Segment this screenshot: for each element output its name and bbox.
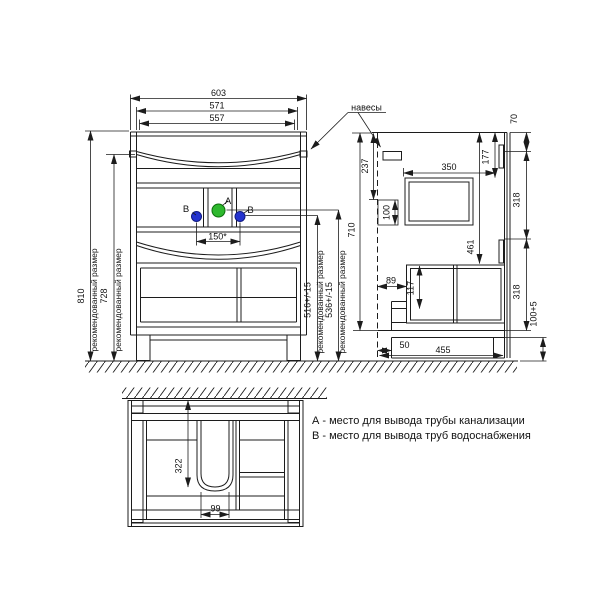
dim-810-note: рекомендованный размер [89,248,99,352]
point-a-label: А [225,196,232,207]
plan-view: 322 99 [122,388,327,527]
dim-536-note: рекомендованный размер [337,250,347,354]
front-view: В А В [130,132,339,361]
dim-810: 810 [76,288,86,303]
technical-drawing-page: В А В 603 571 557 810 рекомендованный ра… [0,0,600,600]
dim-603: 603 [211,88,226,98]
dim-728: 728 [99,288,109,303]
dim-461: 461 [466,239,476,254]
dim-350: 350 [441,162,456,172]
front-view-dimensions: 603 571 557 810 рекомендованный размер 7… [76,88,379,361]
dim-455: 455 [435,345,450,355]
ground [85,361,518,373]
dim-117: 117 [406,281,416,295]
back-rail-top [499,145,504,168]
point-b-label-left: В [183,204,189,215]
dim-150: 150* [208,232,227,242]
dim-50: 50 [399,340,409,350]
dim-536: 536+/-15 [324,282,334,318]
dim-100-5: 100+5 [529,301,539,326]
dim-516: 516+/-15 [303,282,313,318]
legend-line-b: В - место для вывода труб водоснабжения [312,430,531,442]
dim-237: 237 [360,158,370,173]
dim-571: 571 [209,101,224,111]
wall-hanger-bracket [383,152,402,161]
dim-70: 70 [509,114,519,124]
dim-89: 89 [386,276,396,286]
dim-177: 177 [481,149,491,164]
hangers-label: навесы [351,103,382,113]
water-outlet-point-right [235,212,245,222]
dim-710: 710 [347,222,357,237]
legend-line-a: А - место для вывода трубы канализации [312,415,525,427]
legend: А - место для вывода трубы канализации В… [312,415,531,442]
dim-322: 322 [174,458,184,473]
dim-728-note: рекомендованный размер [113,248,123,352]
point-b-label-right: В [247,205,253,216]
vanity-technical-drawing: В А В 603 571 557 810 рекомендованный ра… [0,0,600,600]
dim-557: 557 [209,113,224,123]
dim-318-lower: 318 [512,284,522,299]
dim-100: 100 [382,205,392,220]
dim-99: 99 [210,504,220,514]
drain-outlet-point [212,204,225,217]
back-rail-bottom [499,240,504,263]
hanger-block-right [300,151,307,157]
dim-318-upper: 318 [512,192,522,207]
